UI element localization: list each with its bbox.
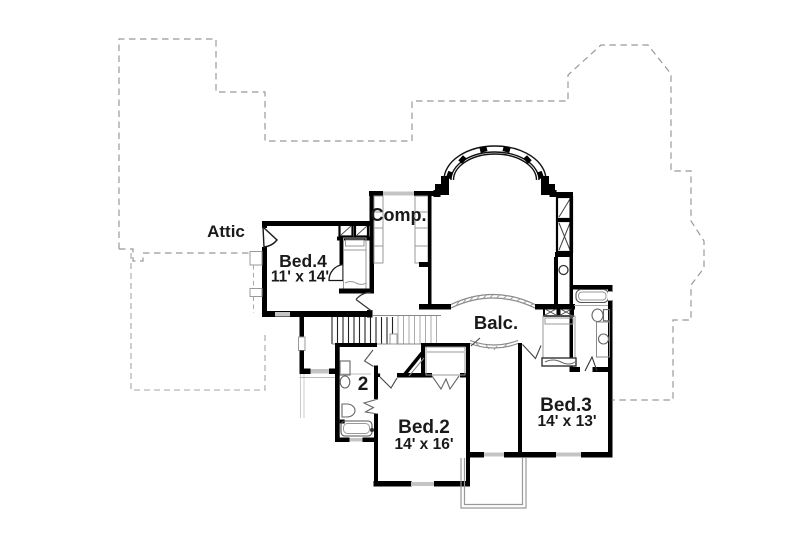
svg-text:14' x 16': 14' x 16' [394,436,453,453]
svg-text:Balc.: Balc. [474,312,518,333]
svg-text:Bed.2: Bed.2 [398,417,450,438]
svg-text:Attic: Attic [207,222,245,241]
svg-text:11' x 14': 11' x 14' [271,269,329,286]
svg-text:14' x 13': 14' x 13' [537,413,596,430]
svg-text:2: 2 [358,374,369,395]
svg-text:Comp.: Comp. [371,205,427,225]
